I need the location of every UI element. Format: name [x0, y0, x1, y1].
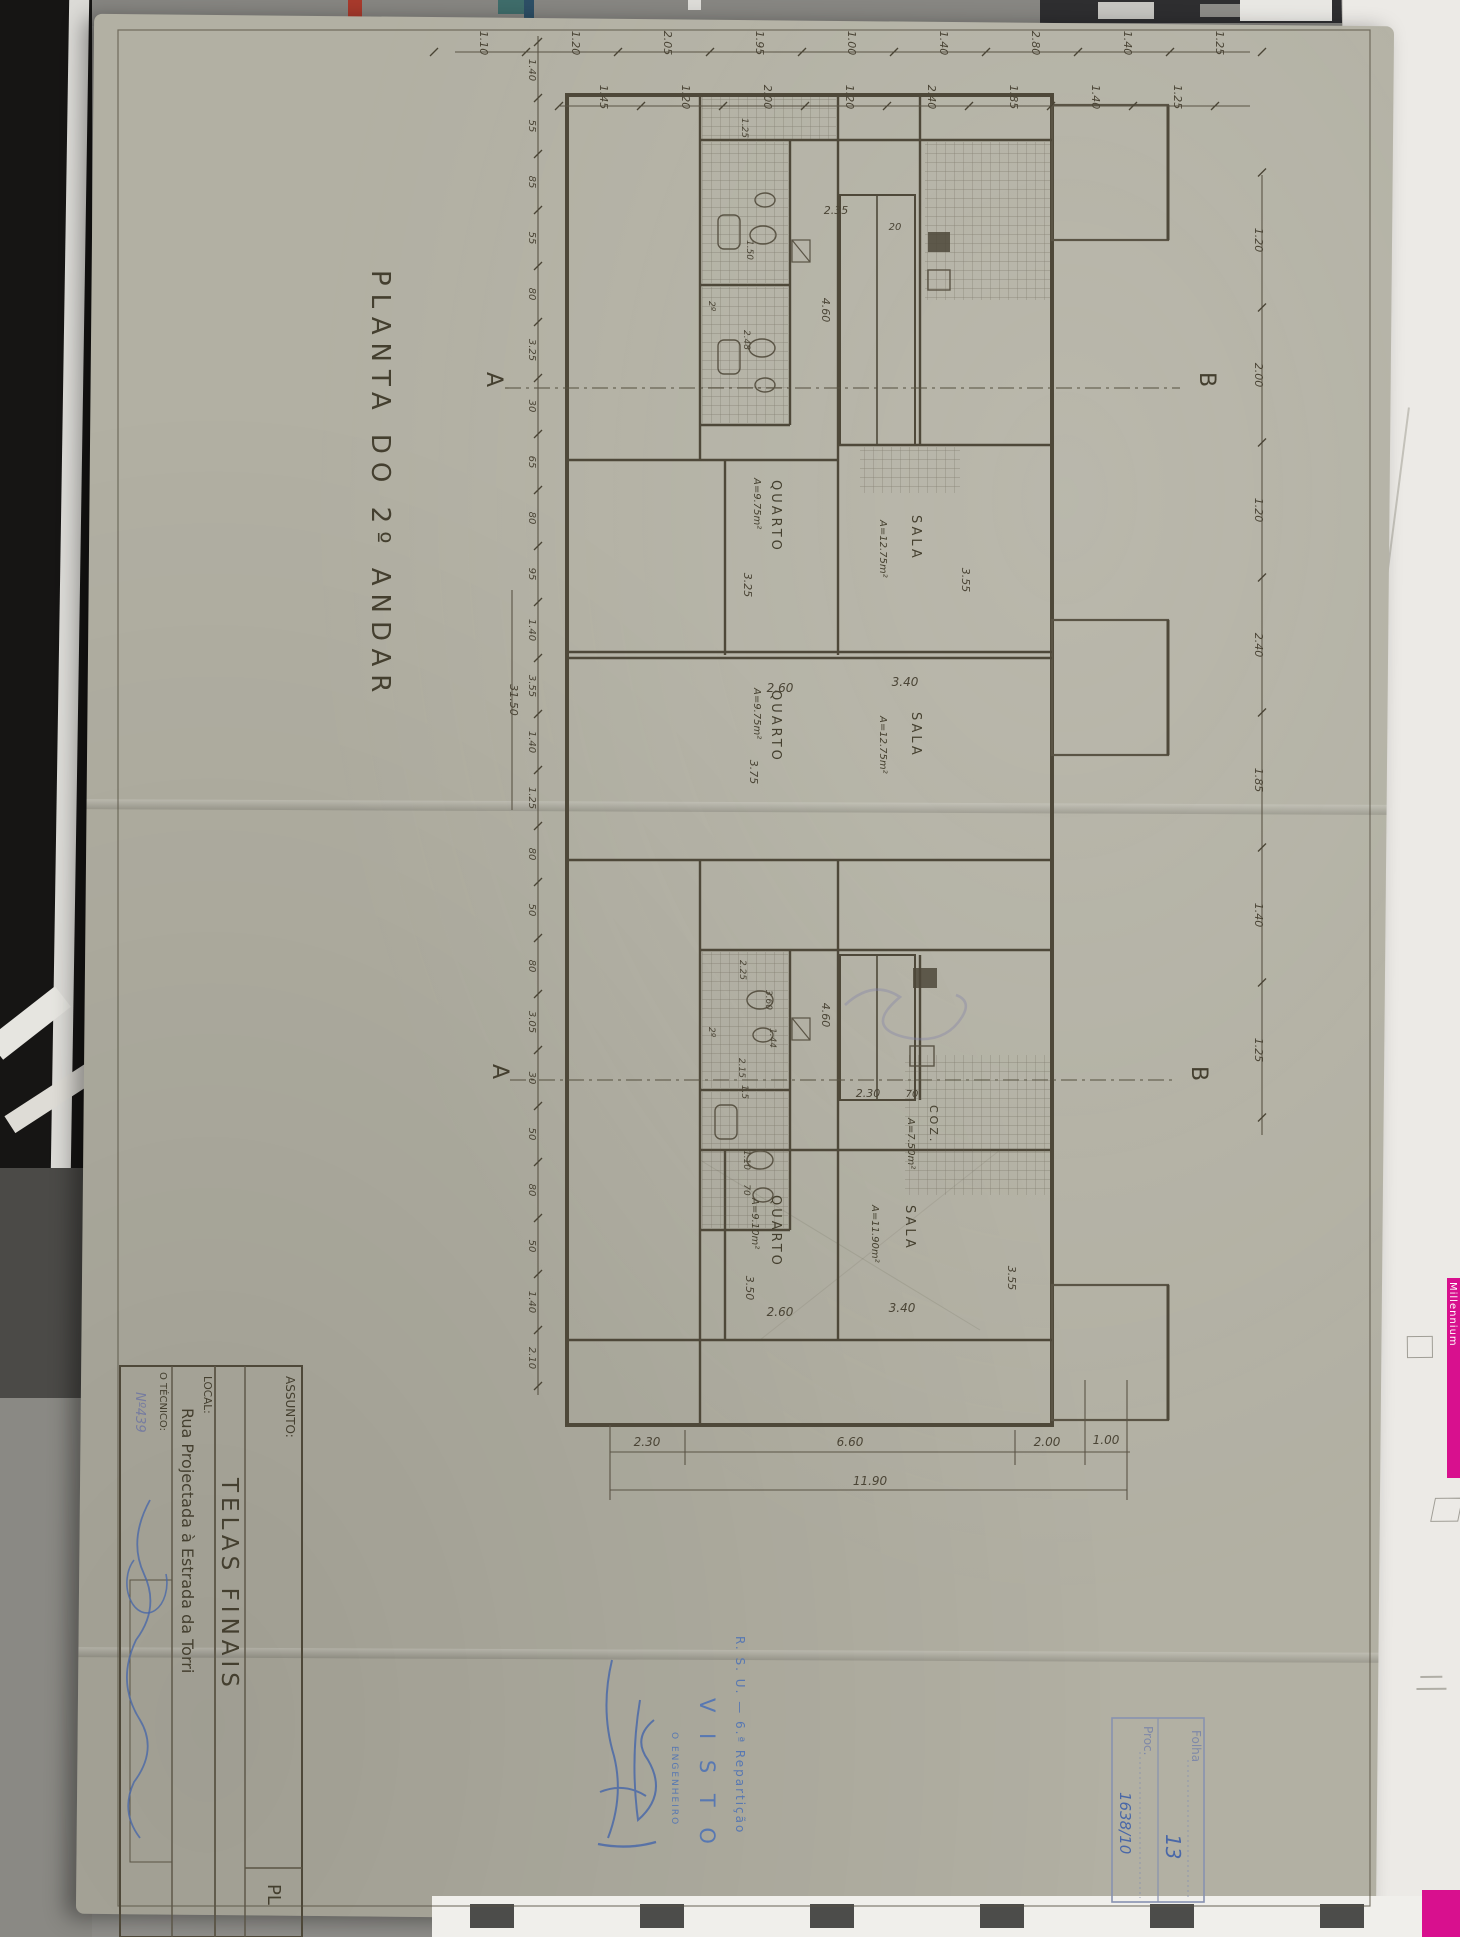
- millennium-brand-corner: [1422, 1890, 1460, 1937]
- desk-object-white: [688, 0, 701, 10]
- millennium-brand-strip: Millennium: [1447, 1278, 1460, 1478]
- checkbox-mark: [1407, 1336, 1433, 1358]
- faint-print-line: [1420, 1676, 1442, 1678]
- millennium-brand-label: Millennium: [1447, 1282, 1458, 1347]
- desk-object-white-card: [1240, 0, 1332, 21]
- checkbox-mark: [1430, 1498, 1460, 1522]
- blueprint-sheet: [76, 14, 1394, 1926]
- scale-bar-segment: [470, 1904, 514, 1928]
- desk-object-gray-box: [1200, 4, 1240, 17]
- scale-bar-segment: [980, 1904, 1024, 1928]
- scale-bar-segment: [1150, 1904, 1194, 1928]
- desk-object-light-box: [1098, 2, 1154, 19]
- scale-bar-strip: [432, 1896, 1460, 1937]
- scale-bar-segment: [810, 1904, 854, 1928]
- scale-bar-segment: [640, 1904, 684, 1928]
- faint-print-line: [1416, 1688, 1446, 1690]
- scale-bar-segment: [1320, 1904, 1364, 1928]
- photographed-blueprint: Millennium PLANTA DO 2º ANDAR: [0, 0, 1460, 1937]
- paper-tint: [76, 14, 1394, 1926]
